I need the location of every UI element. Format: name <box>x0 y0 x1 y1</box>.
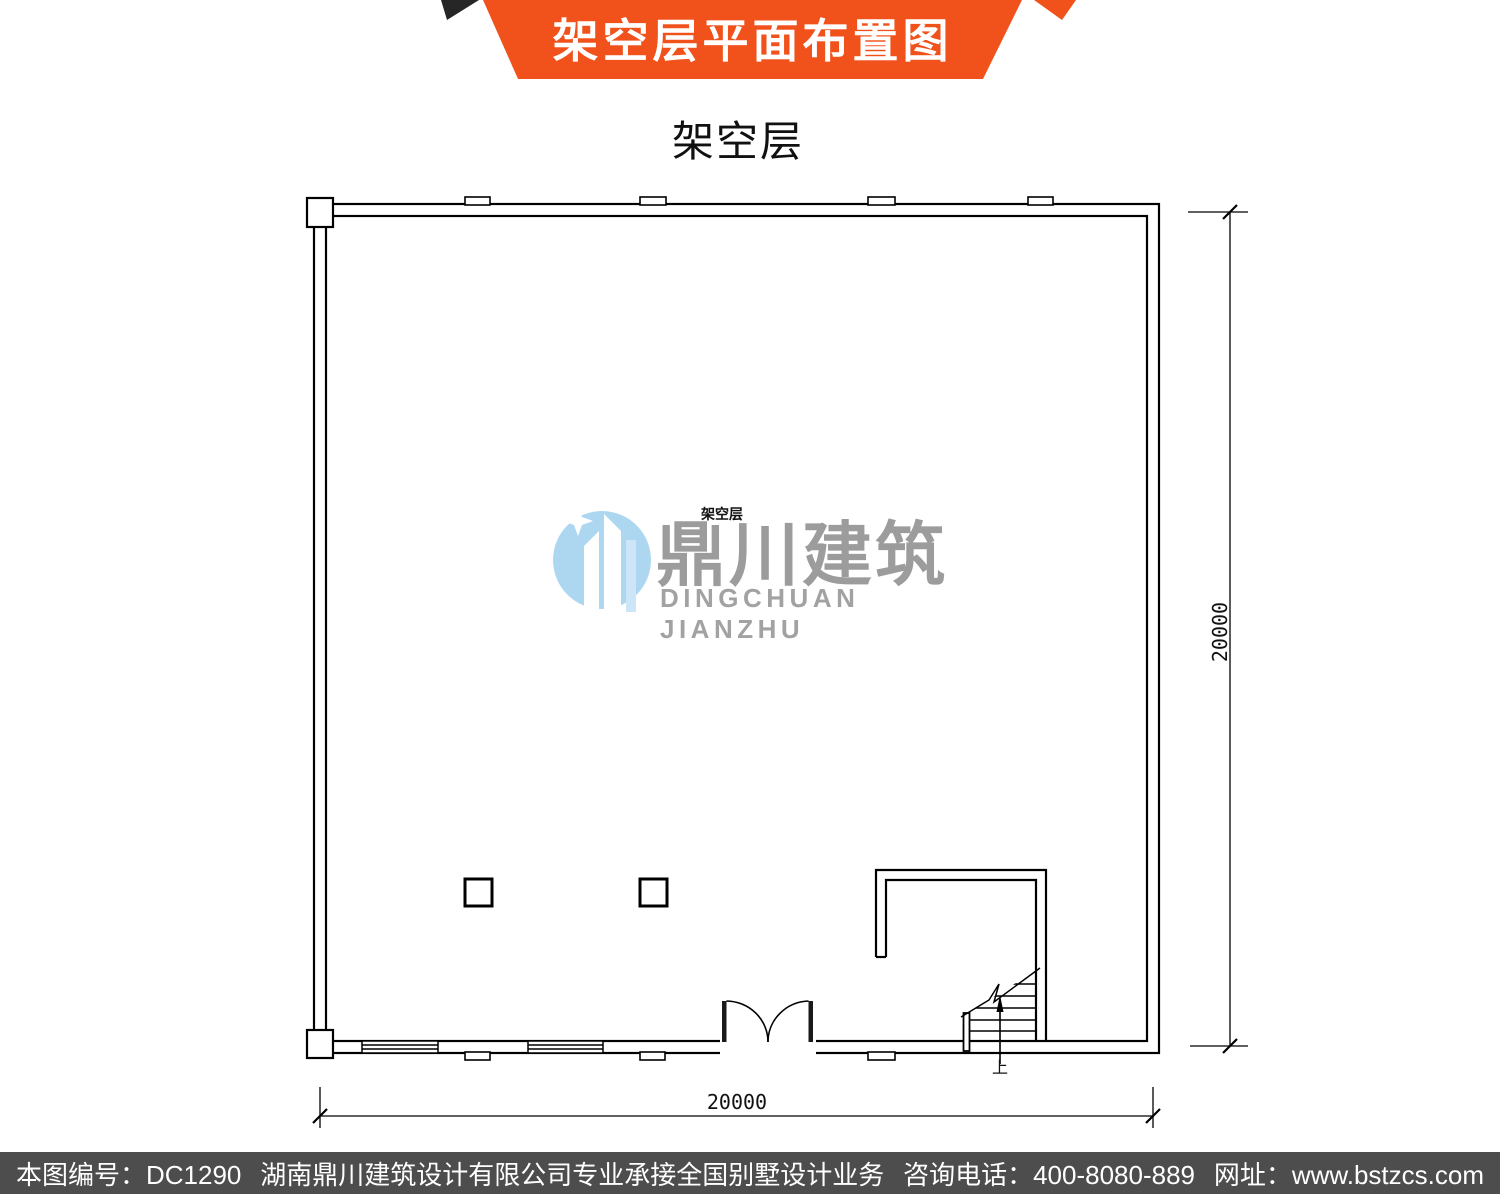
footer-phone: 咨询电话：400-8080-889 <box>903 1155 1195 1192</box>
footer-bar: 本图编号：DC1290 湖南鼎川建筑设计有限公司专业承接全国别墅设计业务 咨询电… <box>0 1152 1500 1194</box>
watermark-logo-text-en: DINGCHUAN JIANZHU <box>660 583 980 645</box>
stair-stringer <box>964 1013 970 1051</box>
dimension-right-value: 20000 <box>1208 582 1228 682</box>
page-title: 架空层平面布置图 <box>480 0 1025 76</box>
dingchuan-logo-icon <box>545 506 651 616</box>
stair-up-label: 上 <box>988 1054 1012 1078</box>
stair-enclosure-walls <box>876 870 1046 1041</box>
footer-drawing-number: 本图编号：DC1290 <box>16 1155 241 1192</box>
dimension-ticks <box>313 205 1237 1123</box>
dimension-bottom-value: 20000 <box>687 1090 787 1114</box>
window <box>362 1041 603 1053</box>
footer-website: 网址：www.bstzcs.com <box>1214 1155 1484 1192</box>
drawing-sheet: 架空层平面布置图 架空层 鼎川建筑 DINGCHUAN JIANZHU 架空层 … <box>0 0 1500 1194</box>
ribbon-right-fold <box>1034 0 1076 20</box>
plan-subtitle: 架空层 <box>438 108 1038 169</box>
dimension-lines <box>320 212 1248 1128</box>
columns <box>465 879 667 906</box>
ribbon-left-fold <box>441 0 479 20</box>
footer-company-line: 湖南鼎川建筑设计有限公司专业承接全国别墅设计业务 <box>260 1155 884 1192</box>
room-label: 架空层 <box>691 504 753 524</box>
double-door <box>722 1001 813 1042</box>
